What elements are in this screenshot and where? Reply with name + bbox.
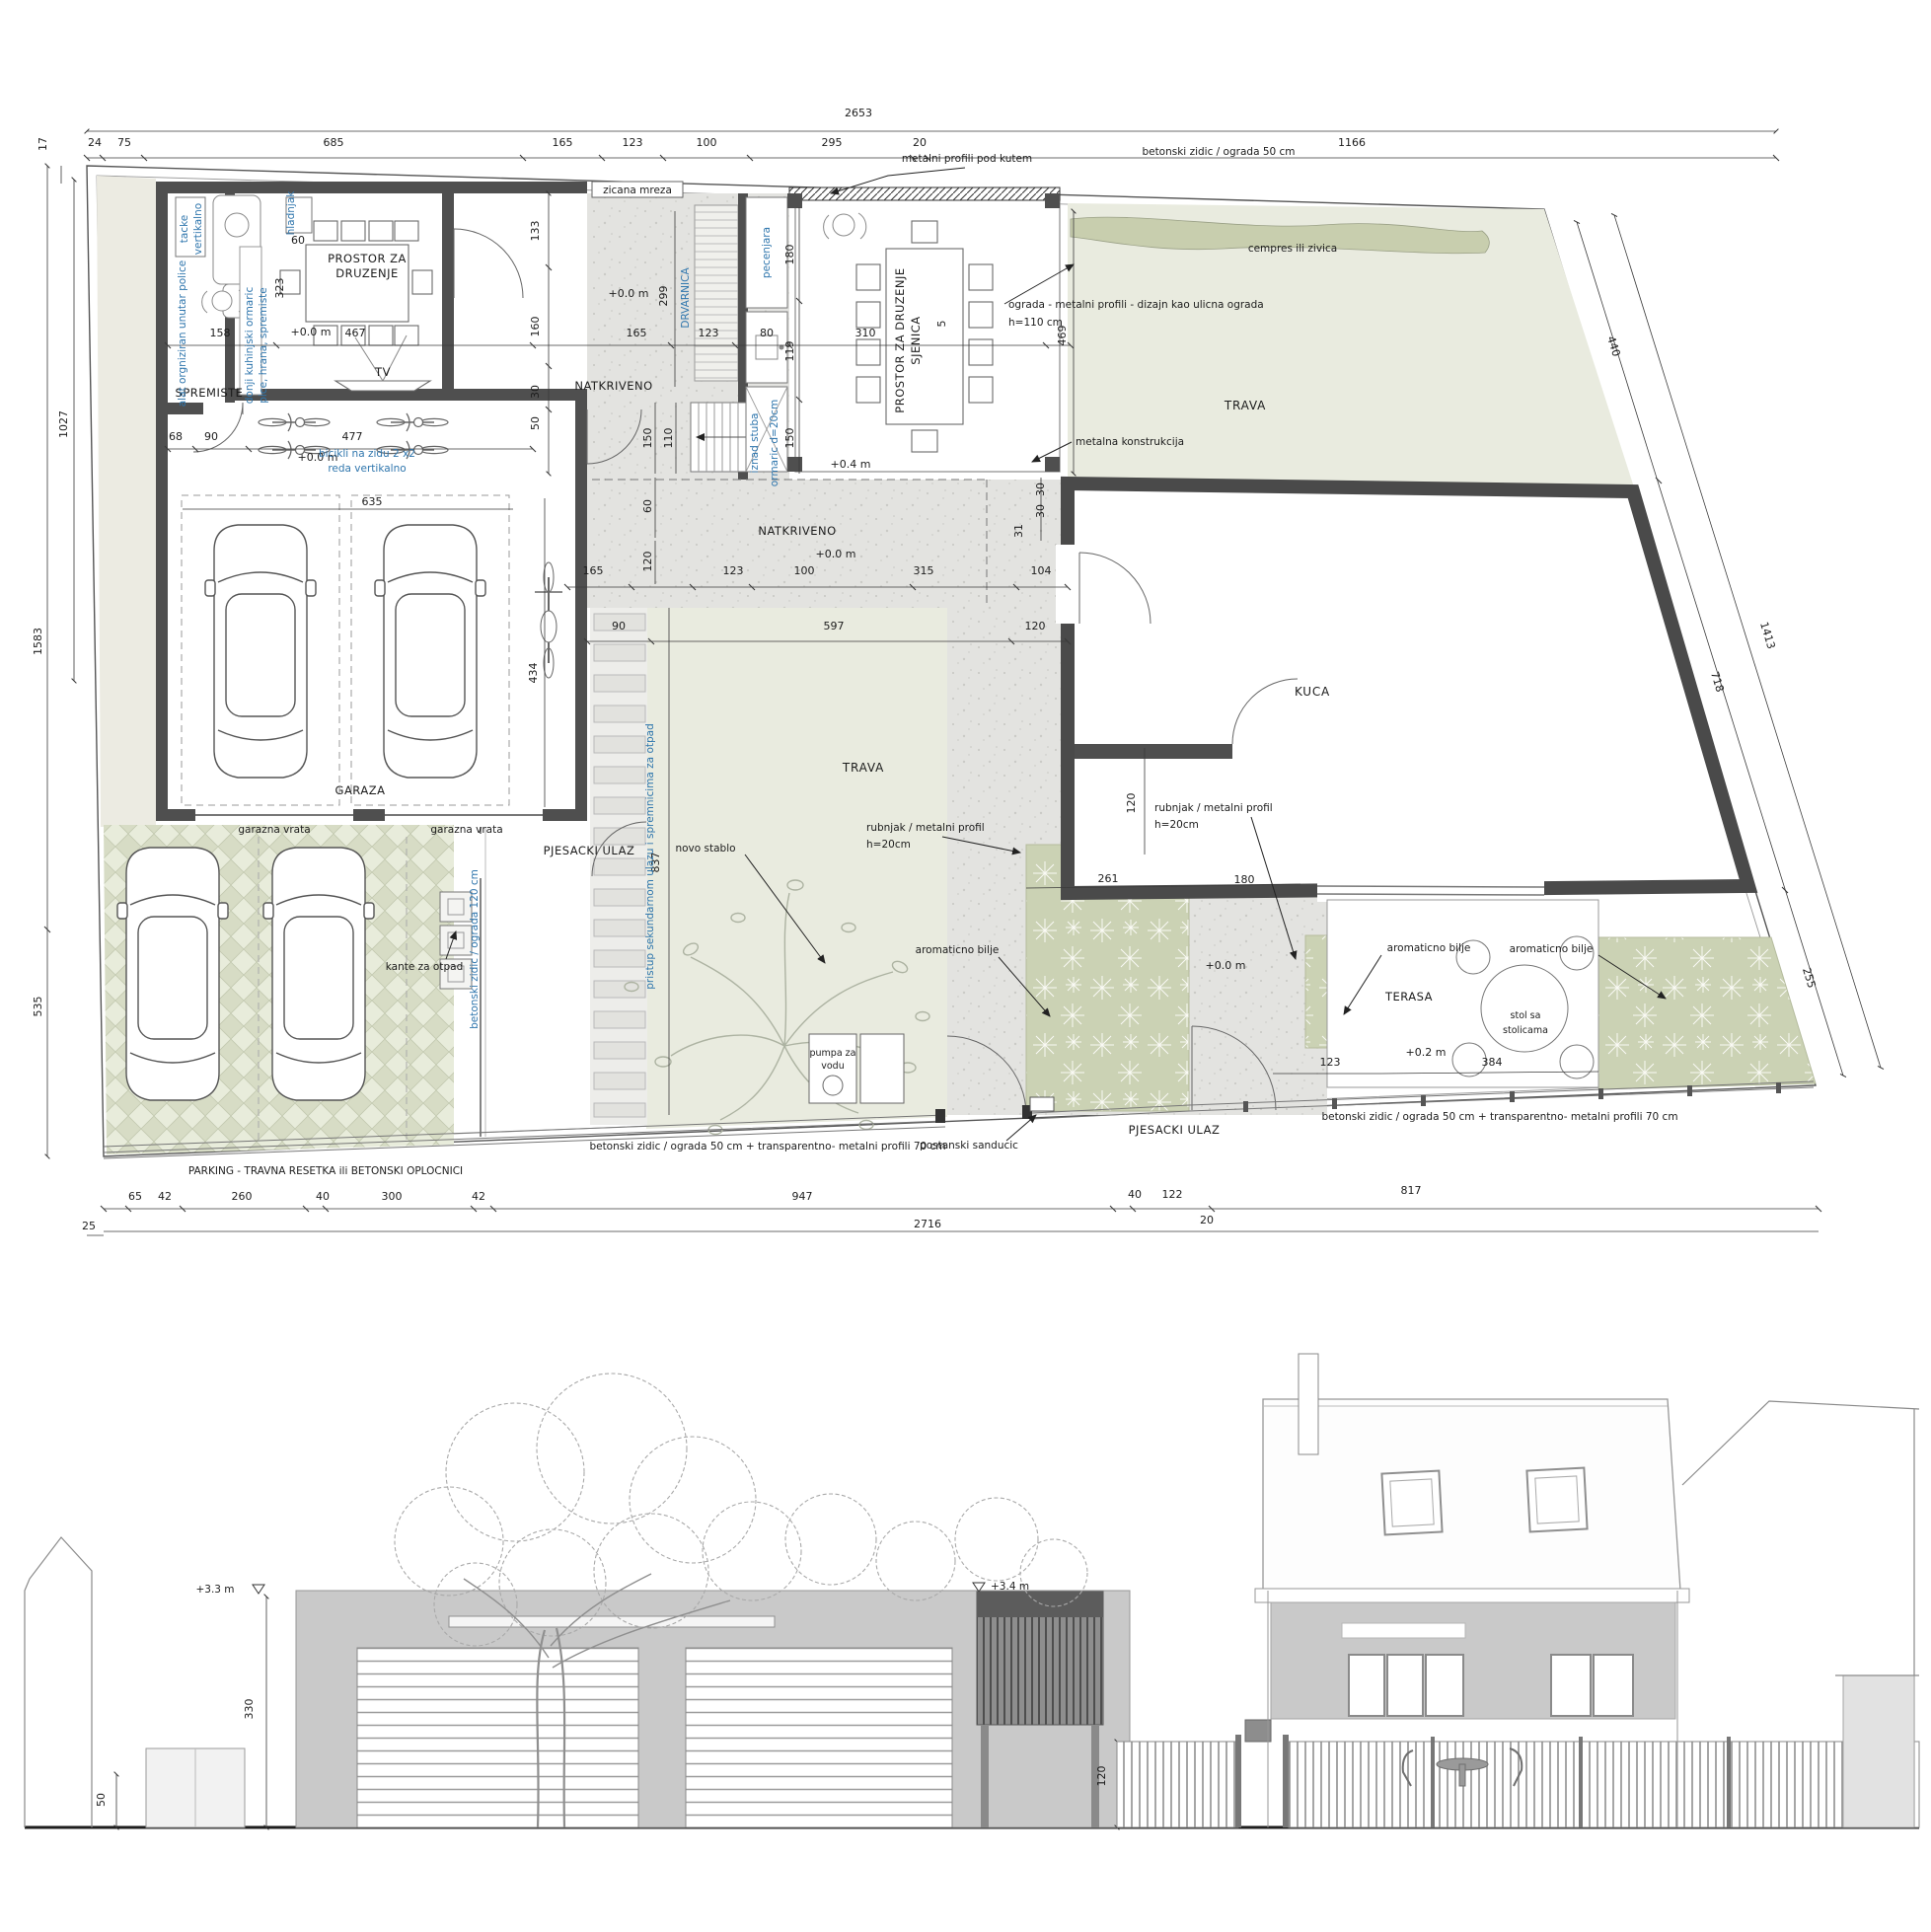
label: 150 xyxy=(783,428,796,449)
label: 2716 xyxy=(914,1218,941,1230)
label: stolicama xyxy=(1503,1025,1548,1036)
label: 440 xyxy=(1604,334,1623,358)
planting-bed xyxy=(1598,937,1816,1089)
label: 123 xyxy=(699,327,719,339)
label: PARKING - TRAVNA RESETKA ili BETONSKI OP… xyxy=(188,1165,463,1177)
label: DRVARNICA xyxy=(680,267,692,329)
label: 299 xyxy=(657,286,670,307)
label: 477 xyxy=(342,430,363,443)
metal-profile-roof-edge xyxy=(789,187,1060,200)
label: GARAZA xyxy=(335,783,386,797)
label: 255 xyxy=(1800,966,1819,990)
street-elevation: +3.3 m33050+3.4 m120 xyxy=(25,1354,1919,1827)
label: 120 xyxy=(1025,620,1046,632)
label: 50 xyxy=(95,1793,108,1807)
label: 25 xyxy=(82,1220,96,1232)
label: 65 xyxy=(128,1190,142,1203)
label: 315 xyxy=(914,564,934,577)
label: +0.0 m xyxy=(1206,959,1246,972)
label: +0.4 m xyxy=(831,458,871,471)
label: 150 xyxy=(641,428,654,449)
label: 123 xyxy=(723,564,744,577)
label: +0.0 m xyxy=(816,548,856,560)
label: 597 xyxy=(824,620,845,632)
label: pumpa za xyxy=(810,1048,856,1059)
label: 42 xyxy=(158,1190,172,1203)
label: vodu xyxy=(821,1061,845,1072)
label: 323 xyxy=(273,278,286,299)
label: rubnjak / metalni profil xyxy=(1154,802,1273,814)
label: TERASA xyxy=(1384,990,1433,1003)
label: 100 xyxy=(697,136,717,149)
label: 310 xyxy=(855,327,876,339)
waste-bins xyxy=(440,892,472,989)
label: +0.0 m xyxy=(609,287,649,300)
label: 90 xyxy=(204,430,218,443)
label: +0.0 m xyxy=(291,326,332,338)
label: 90 xyxy=(612,620,626,632)
label: 133 xyxy=(529,221,542,242)
label: betonski zidic / ograda 50 cm + transpar… xyxy=(1321,1111,1677,1123)
label: TRAVA xyxy=(1224,399,1266,412)
label: 24 xyxy=(88,136,102,149)
label: DRUZENJE xyxy=(335,266,398,280)
label: 119 xyxy=(783,341,796,362)
label: PJESACKI ULAZ xyxy=(544,844,635,857)
label: TRAVA xyxy=(842,761,884,775)
label: 1583 xyxy=(32,628,44,655)
label: 1413 xyxy=(1757,621,1778,651)
label: 104 xyxy=(1031,564,1052,577)
label: 817 xyxy=(1401,1184,1422,1197)
label: TV xyxy=(374,365,391,379)
label: 75 xyxy=(117,136,131,149)
label: betonski zidic / ograda 120 cm xyxy=(469,869,481,1029)
label: 947 xyxy=(792,1190,813,1203)
label: garazna vrata xyxy=(238,824,310,836)
label: 100 xyxy=(794,564,815,577)
label: 330 xyxy=(243,1699,256,1720)
label: PJESACKI ULAZ xyxy=(1129,1123,1221,1137)
label: betonski zidic / ograda 50 cm xyxy=(1142,146,1295,158)
label: alat orgniziran unutar police xyxy=(177,260,188,408)
label: 160 xyxy=(529,317,542,337)
label: 123 xyxy=(1320,1056,1341,1069)
label: 635 xyxy=(362,495,383,508)
label: 30 xyxy=(529,385,542,399)
label: 120 xyxy=(1095,1766,1108,1787)
label: aromaticno bilje xyxy=(1387,942,1471,954)
label: 60 xyxy=(641,499,654,513)
label: 300 xyxy=(382,1190,403,1203)
label: 40 xyxy=(316,1190,330,1203)
label: metalna konstrukcija xyxy=(1076,436,1184,448)
label: betonski zidic / ograda 50 cm + transpar… xyxy=(589,1141,945,1152)
label: hladnjak xyxy=(285,190,297,236)
chimney xyxy=(1299,1354,1318,1454)
label: 718 xyxy=(1708,670,1727,694)
label: 40 xyxy=(1128,1188,1142,1201)
label: PROSTOR ZA xyxy=(328,252,407,265)
label: stol sa xyxy=(1511,1010,1541,1021)
street-fence xyxy=(1117,1720,1919,1827)
label: pristup sekundarnom ulazu i spremnicima … xyxy=(644,723,656,990)
label: PROSTOR ZA DRUZENJE xyxy=(893,267,907,412)
label: pecenjara xyxy=(761,227,773,278)
label: 165 xyxy=(553,136,573,149)
label: 180 xyxy=(1234,873,1255,886)
label: 120 xyxy=(1125,793,1138,814)
label: zicana mreza xyxy=(603,185,672,196)
label: aromaticno bilje xyxy=(916,944,1000,956)
label: 1166 xyxy=(1338,136,1366,149)
label: SJENICA xyxy=(909,316,923,364)
label: reda vertikalno xyxy=(328,463,406,475)
label: aromaticno bilje xyxy=(1510,943,1594,955)
label: 165 xyxy=(627,327,647,339)
label: 2653 xyxy=(845,107,872,119)
label: garazna vrata xyxy=(430,824,502,836)
mailbox xyxy=(1245,1720,1271,1742)
label: 384 xyxy=(1482,1056,1503,1069)
label: h=20cm xyxy=(866,839,911,851)
label: 535 xyxy=(32,997,44,1017)
label: donji kuhinjski ormaric xyxy=(244,287,256,405)
pergola-slab xyxy=(449,1616,775,1627)
site-plan: 2653247568516512310029520116617102715835… xyxy=(32,107,1881,1235)
label: 434 xyxy=(527,663,540,684)
label: 42 xyxy=(472,1190,485,1203)
label: +3.3 m xyxy=(195,1584,234,1596)
sjenica-pavilion xyxy=(787,187,1060,472)
label: tacke xyxy=(179,215,190,244)
label: ormaric d=20cm xyxy=(769,400,780,486)
label: 30 xyxy=(1034,504,1047,518)
label: 165 xyxy=(583,564,604,577)
label: 17 xyxy=(37,137,49,151)
label: 110 xyxy=(662,428,675,449)
left-neighbor-building xyxy=(25,1537,245,1827)
label: metalni profili pod kutem xyxy=(902,153,1032,165)
label: 123 xyxy=(623,136,643,149)
label: 31 xyxy=(1012,524,1025,538)
label: cempres ili zivica xyxy=(1248,243,1337,255)
label: 158 xyxy=(210,327,231,339)
table xyxy=(1481,965,1568,1052)
architectural-drawing: 2653247568516512310029520116617102715835… xyxy=(0,0,1931,1932)
drawing-canvas: 2653247568516512310029520116617102715835… xyxy=(0,0,1931,1932)
label: 5 xyxy=(935,321,948,328)
label: KUCA xyxy=(1295,685,1330,699)
mailbox xyxy=(1030,1097,1054,1111)
label: 467 xyxy=(345,327,366,339)
label: 20 xyxy=(913,136,927,149)
label: 20 xyxy=(1200,1214,1214,1226)
label: iznad stuba xyxy=(749,413,761,474)
label: NATKRIVENO xyxy=(758,524,836,538)
label: 122 xyxy=(1162,1188,1183,1201)
label: 68 xyxy=(169,430,183,443)
kuca-house xyxy=(1056,483,1748,902)
label: 295 xyxy=(822,136,843,149)
label: 1027 xyxy=(57,410,70,438)
garage-door xyxy=(686,1648,952,1827)
paver-strip xyxy=(590,608,647,1125)
label: 80 xyxy=(760,327,774,339)
label: 685 xyxy=(324,136,344,149)
garage-door xyxy=(357,1648,638,1827)
label: h=20cm xyxy=(1154,819,1199,831)
label: 50 xyxy=(529,416,542,430)
label: bicikli na zidu 2 x2 xyxy=(319,448,415,460)
label: kante za otpad xyxy=(386,961,464,973)
label: NATKRIVENO xyxy=(574,379,652,393)
label: h=110 cm xyxy=(1008,317,1063,329)
label: novo stablo xyxy=(675,843,735,855)
label: 120 xyxy=(641,552,654,572)
label: 260 xyxy=(232,1190,253,1203)
label: pice, hrana, spremiste xyxy=(258,287,269,404)
label: +3.4 m xyxy=(991,1581,1029,1593)
label: rubnjak / metalni profil xyxy=(866,822,985,834)
label: 180 xyxy=(783,245,796,265)
label: 261 xyxy=(1098,872,1119,885)
label: +0.2 m xyxy=(1406,1046,1447,1059)
label: ograda - metalni profili - dizajn kao ul… xyxy=(1008,299,1264,311)
label: 30 xyxy=(1034,483,1047,496)
label: vertikalno xyxy=(192,203,204,255)
